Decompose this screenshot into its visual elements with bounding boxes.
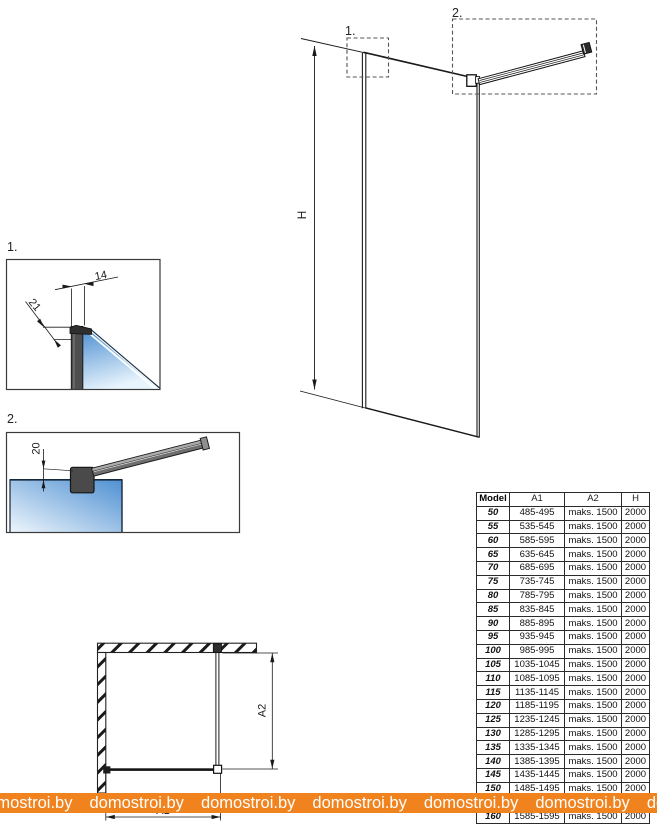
watermark-text: domostroi.by <box>201 793 295 813</box>
table-cell: maks. 1500 <box>565 630 622 644</box>
table-cell: maks. 1500 <box>565 520 622 534</box>
table-cell: 1385-1395 <box>510 755 565 769</box>
table-cell: maks. 1500 <box>565 548 622 562</box>
table-cell: 2000 <box>622 644 650 658</box>
table-cell: 125 <box>477 713 510 727</box>
detail1-title-label: 1. <box>7 241 17 254</box>
watermark-text: domostroi.by <box>0 793 72 813</box>
table-row: 85835-845maks. 15002000 <box>477 603 650 617</box>
height-dim-label: H <box>296 207 308 223</box>
table-row: 90885-895maks. 15002000 <box>477 617 650 631</box>
table-row: 1351335-1345maks. 15002000 <box>477 741 650 755</box>
table-cell: maks. 1500 <box>565 713 622 727</box>
table-cell: 50 <box>477 506 510 520</box>
dimA2-label: A2 <box>257 703 268 719</box>
watermark-text: domostroi.by <box>535 793 629 813</box>
table-cell: 1435-1445 <box>510 768 565 782</box>
table-cell: 100 <box>477 644 510 658</box>
table-cell: 65 <box>477 548 510 562</box>
top-extension-line <box>301 39 367 54</box>
table-cell: 935-945 <box>510 630 565 644</box>
table-cell: 1035-1045 <box>510 658 565 672</box>
table-row: 1451435-1445maks. 15002000 <box>477 768 650 782</box>
table-cell: 2000 <box>622 534 650 548</box>
table-cell: 2000 <box>622 713 650 727</box>
table-cell: 2000 <box>622 617 650 631</box>
table-row: 95935-945maks. 15002000 <box>477 630 650 644</box>
table-cell: maks. 1500 <box>565 617 622 631</box>
table-row: 1301285-1295maks. 15002000 <box>477 727 650 741</box>
table-cell: 135 <box>477 741 510 755</box>
table-row: 55535-545maks. 15002000 <box>477 520 650 534</box>
table-cell: maks. 1500 <box>565 658 622 672</box>
table-cell: maks. 1500 <box>565 589 622 603</box>
watermark-band: domostroi.bydomostroi.bydomostroi.bydomo… <box>0 793 657 813</box>
table-cell: 2000 <box>622 575 650 589</box>
dimA1-arrow-right <box>212 815 221 819</box>
table-cell: 1135-1145 <box>510 686 565 700</box>
table-row: 65635-645maks. 15002000 <box>477 548 650 562</box>
detail2-title-label: 2. <box>7 413 17 426</box>
table-cell: 2000 <box>622 699 650 713</box>
table-cell: 145 <box>477 768 510 782</box>
watermark-text: domostroi.by <box>89 793 183 813</box>
size-table-header-row: Model A1 A2 H <box>477 493 650 507</box>
table-cell: 885-895 <box>510 617 565 631</box>
table-cell: maks. 1500 <box>565 506 622 520</box>
size-table: Model A1 A2 H 50485-495maks. 15002000555… <box>476 492 650 824</box>
dimA2-arrow-bottom <box>270 760 274 769</box>
table-cell: maks. 1500 <box>565 686 622 700</box>
h-arrow-bottom <box>312 380 316 390</box>
table-cell: 2000 <box>622 658 650 672</box>
table-cell: 2000 <box>622 561 650 575</box>
table-cell: 55 <box>477 520 510 534</box>
table-cell: maks. 1500 <box>565 561 622 575</box>
table-row: 75735-745maks. 15002000 <box>477 575 650 589</box>
table-row: 1201185-1195maks. 15002000 <box>477 699 650 713</box>
table-cell: 85 <box>477 603 510 617</box>
table-cell: 535-545 <box>510 520 565 534</box>
table-cell: 2000 <box>622 630 650 644</box>
h-arrow-top <box>312 46 316 56</box>
table-row: 1051035-1045maks. 15002000 <box>477 658 650 672</box>
detail2-glass <box>10 480 122 532</box>
table-cell: 585-595 <box>510 534 565 548</box>
table-cell: 90 <box>477 617 510 631</box>
glass-clamp <box>467 75 477 87</box>
detail2-ref-label: 2. <box>452 7 462 20</box>
table-cell: 2000 <box>622 755 650 769</box>
table-row: 80785-795maks. 15002000 <box>477 589 650 603</box>
table-cell: 635-645 <box>510 548 565 562</box>
table-cell: 60 <box>477 534 510 548</box>
detail-1-view <box>7 260 161 391</box>
table-cell: 2000 <box>622 768 650 782</box>
watermark-text: domostroi.by <box>424 793 518 813</box>
table-cell: 1285-1295 <box>510 727 565 741</box>
dimA2-arrow-top <box>270 653 274 662</box>
detail1-wall-profile <box>71 327 83 390</box>
detail2-clamp <box>71 467 95 493</box>
size-table-head: Model A1 A2 H <box>477 493 650 507</box>
plan-bar-clamp <box>214 765 222 773</box>
table-cell: 2000 <box>622 603 650 617</box>
table-cell: 2000 <box>622 589 650 603</box>
detail1-ref-label: 1. <box>345 25 355 38</box>
table-cell: 735-745 <box>510 575 565 589</box>
table-cell: maks. 1500 <box>565 755 622 769</box>
plan-wall-profile-block <box>103 766 110 773</box>
table-cell: 985-995 <box>510 644 565 658</box>
table-row: 100985-995maks. 15002000 <box>477 644 650 658</box>
table-cell: 70 <box>477 561 510 575</box>
table-cell: 105 <box>477 658 510 672</box>
table-body: 50485-495maks. 1500200055535-545maks. 15… <box>477 506 650 823</box>
table-cell: maks. 1500 <box>565 644 622 658</box>
floor-extension-line <box>300 391 371 410</box>
dimA1-arrow-left <box>106 815 115 819</box>
watermark-text: domostroi.by <box>647 793 657 813</box>
technical-drawing-page: 1. 2. H 1. 14 21 2. 20 A2 A1 Model A1 A2… <box>0 0 657 825</box>
dim20-label: 20 <box>31 440 42 456</box>
table-cell: maks. 1500 <box>565 727 622 741</box>
table-cell: 2000 <box>622 727 650 741</box>
col-header-h: H <box>622 493 650 507</box>
table-cell: 785-795 <box>510 589 565 603</box>
plan-bar-wall-mount <box>213 644 221 653</box>
main-elevation <box>300 19 597 437</box>
table-row: 1251235-1245maks. 15002000 <box>477 713 650 727</box>
table-cell: 120 <box>477 699 510 713</box>
table-cell: 2000 <box>622 520 650 534</box>
glass-bottom-edge <box>365 408 479 438</box>
table-cell: 130 <box>477 727 510 741</box>
table-cell: 2000 <box>622 686 650 700</box>
plan-glass <box>106 768 222 771</box>
table-row: 60585-595maks. 15002000 <box>477 534 650 548</box>
table-row: 1151135-1145maks. 15002000 <box>477 686 650 700</box>
table-cell: maks. 1500 <box>565 741 622 755</box>
detail1-callout-box <box>347 38 389 77</box>
table-cell: 485-495 <box>510 506 565 520</box>
table-cell: 80 <box>477 589 510 603</box>
support-bar <box>478 51 585 85</box>
table-cell: 1235-1245 <box>510 713 565 727</box>
plan-wall-top <box>98 643 257 652</box>
table-cell: 2000 <box>622 672 650 686</box>
table-cell: 140 <box>477 755 510 769</box>
table-cell: 2000 <box>622 506 650 520</box>
col-header-a2: A2 <box>565 493 622 507</box>
table-cell: 115 <box>477 686 510 700</box>
table-cell: maks. 1500 <box>565 534 622 548</box>
table-cell: 1185-1195 <box>510 699 565 713</box>
table-row: 1401385-1395maks. 15002000 <box>477 755 650 769</box>
table-cell: 2000 <box>622 741 650 755</box>
table-cell: maks. 1500 <box>565 575 622 589</box>
table-row: 50485-495maks. 15002000 <box>477 506 650 520</box>
table-cell: 1335-1345 <box>510 741 565 755</box>
table-cell: 685-695 <box>510 561 565 575</box>
col-header-model: Model <box>477 493 510 507</box>
table-row: 70685-695maks. 15002000 <box>477 561 650 575</box>
table-cell: maks. 1500 <box>565 699 622 713</box>
table-cell: 75 <box>477 575 510 589</box>
table-cell: 95 <box>477 630 510 644</box>
col-header-a1: A1 <box>510 493 565 507</box>
watermark-text: domostroi.by <box>312 793 406 813</box>
table-cell: maks. 1500 <box>565 768 622 782</box>
table-cell: 2000 <box>622 548 650 562</box>
table-cell: 110 <box>477 672 510 686</box>
table-cell: 835-845 <box>510 603 565 617</box>
table-cell: maks. 1500 <box>565 603 622 617</box>
table-row: 1101085-1095maks. 15002000 <box>477 672 650 686</box>
table-cell: maks. 1500 <box>565 672 622 686</box>
table-cell: 1085-1095 <box>510 672 565 686</box>
